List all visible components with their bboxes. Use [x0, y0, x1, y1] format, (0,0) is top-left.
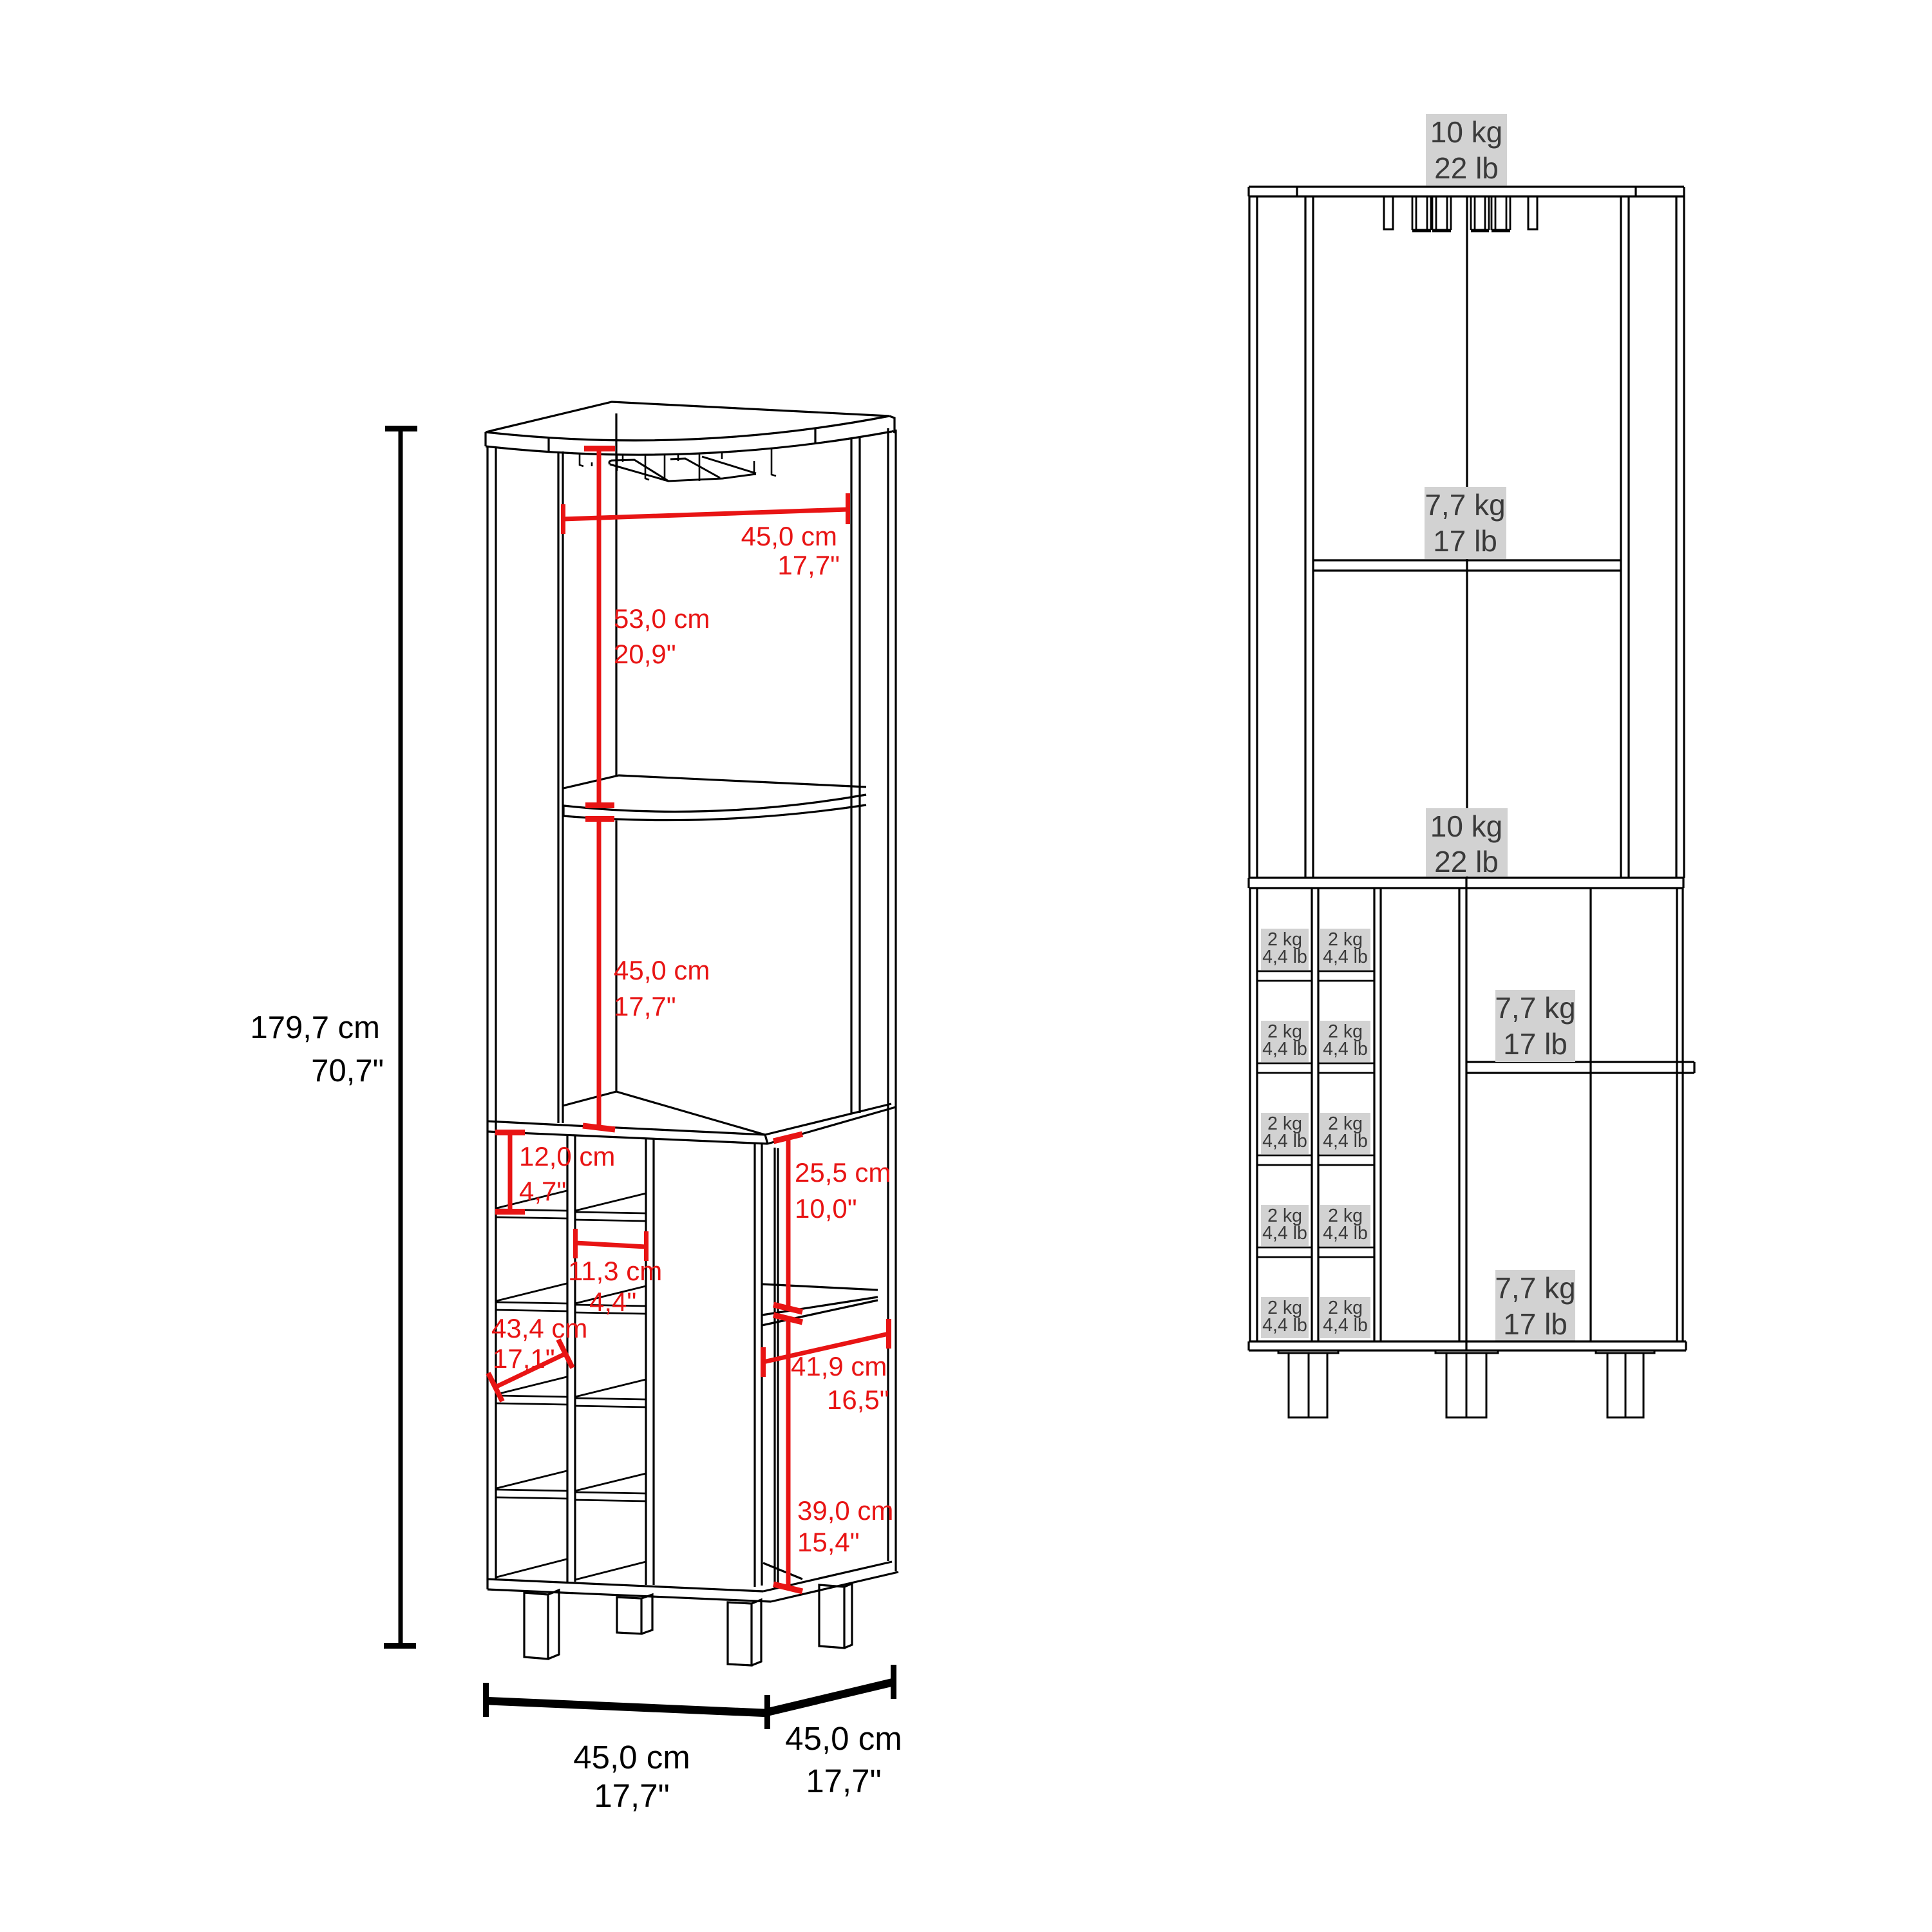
svg-text:7,7 kg: 7,7 kg	[1425, 488, 1505, 522]
svg-text:17 lb: 17 lb	[1433, 524, 1497, 558]
svg-text:4,4 lb: 4,4 lb	[1262, 1315, 1307, 1336]
svg-text:4,4 lb: 4,4 lb	[1323, 1131, 1368, 1151]
svg-text:4,4 lb: 4,4 lb	[1323, 1223, 1368, 1244]
svg-text:7,7 kg: 7,7 kg	[1495, 991, 1575, 1025]
svg-text:17,7": 17,7"	[614, 991, 676, 1021]
svg-text:4,4 lb: 4,4 lb	[1262, 947, 1307, 967]
svg-text:179,7 cm: 179,7 cm	[250, 1010, 380, 1045]
svg-text:45,0 cm: 45,0 cm	[614, 955, 710, 985]
svg-text:70,7": 70,7"	[311, 1054, 384, 1088]
svg-text:17,7": 17,7"	[806, 1763, 881, 1799]
svg-text:12,0 cm: 12,0 cm	[519, 1141, 615, 1171]
svg-text:11,3 cm: 11,3 cm	[568, 1256, 662, 1286]
svg-text:17 lb: 17 lb	[1503, 1307, 1567, 1341]
svg-text:43,4 cm: 43,4 cm	[491, 1313, 587, 1343]
svg-text:7,7 kg: 7,7 kg	[1495, 1271, 1575, 1305]
svg-text:17 lb: 17 lb	[1503, 1027, 1567, 1061]
svg-text:4,4 lb: 4,4 lb	[1262, 1223, 1307, 1244]
svg-text:15,4": 15,4"	[797, 1527, 860, 1557]
svg-text:4,4 lb: 4,4 lb	[1323, 1315, 1368, 1336]
svg-text:45,0 cm: 45,0 cm	[573, 1739, 690, 1776]
svg-text:17,7": 17,7"	[777, 550, 840, 580]
svg-text:25,5 cm: 25,5 cm	[795, 1157, 891, 1188]
svg-text:45,0 cm: 45,0 cm	[785, 1720, 902, 1757]
svg-text:53,0 cm: 53,0 cm	[614, 603, 710, 634]
svg-text:17,7": 17,7"	[594, 1777, 669, 1814]
svg-text:16,5": 16,5"	[827, 1385, 889, 1415]
svg-text:4,4": 4,4"	[589, 1287, 636, 1317]
svg-text:4,7": 4,7"	[519, 1176, 566, 1206]
svg-text:41,9 cm: 41,9 cm	[791, 1351, 887, 1381]
svg-text:22 lb: 22 lb	[1434, 845, 1499, 878]
svg-text:45,0 cm: 45,0 cm	[741, 521, 837, 551]
svg-text:4,4 lb: 4,4 lb	[1323, 947, 1368, 967]
svg-text:17,1": 17,1"	[493, 1343, 555, 1374]
svg-text:4,4 lb: 4,4 lb	[1262, 1039, 1307, 1059]
svg-text:10,0": 10,0"	[795, 1193, 857, 1224]
svg-text:4,4 lb: 4,4 lb	[1262, 1131, 1307, 1151]
svg-text:4,4 lb: 4,4 lb	[1323, 1039, 1368, 1059]
svg-text:10 kg: 10 kg	[1430, 115, 1503, 149]
svg-text:22 lb: 22 lb	[1434, 151, 1499, 185]
svg-text:10 kg: 10 kg	[1430, 810, 1503, 843]
svg-text:39,0 cm: 39,0 cm	[797, 1495, 893, 1526]
svg-text:20,9": 20,9"	[614, 639, 676, 669]
